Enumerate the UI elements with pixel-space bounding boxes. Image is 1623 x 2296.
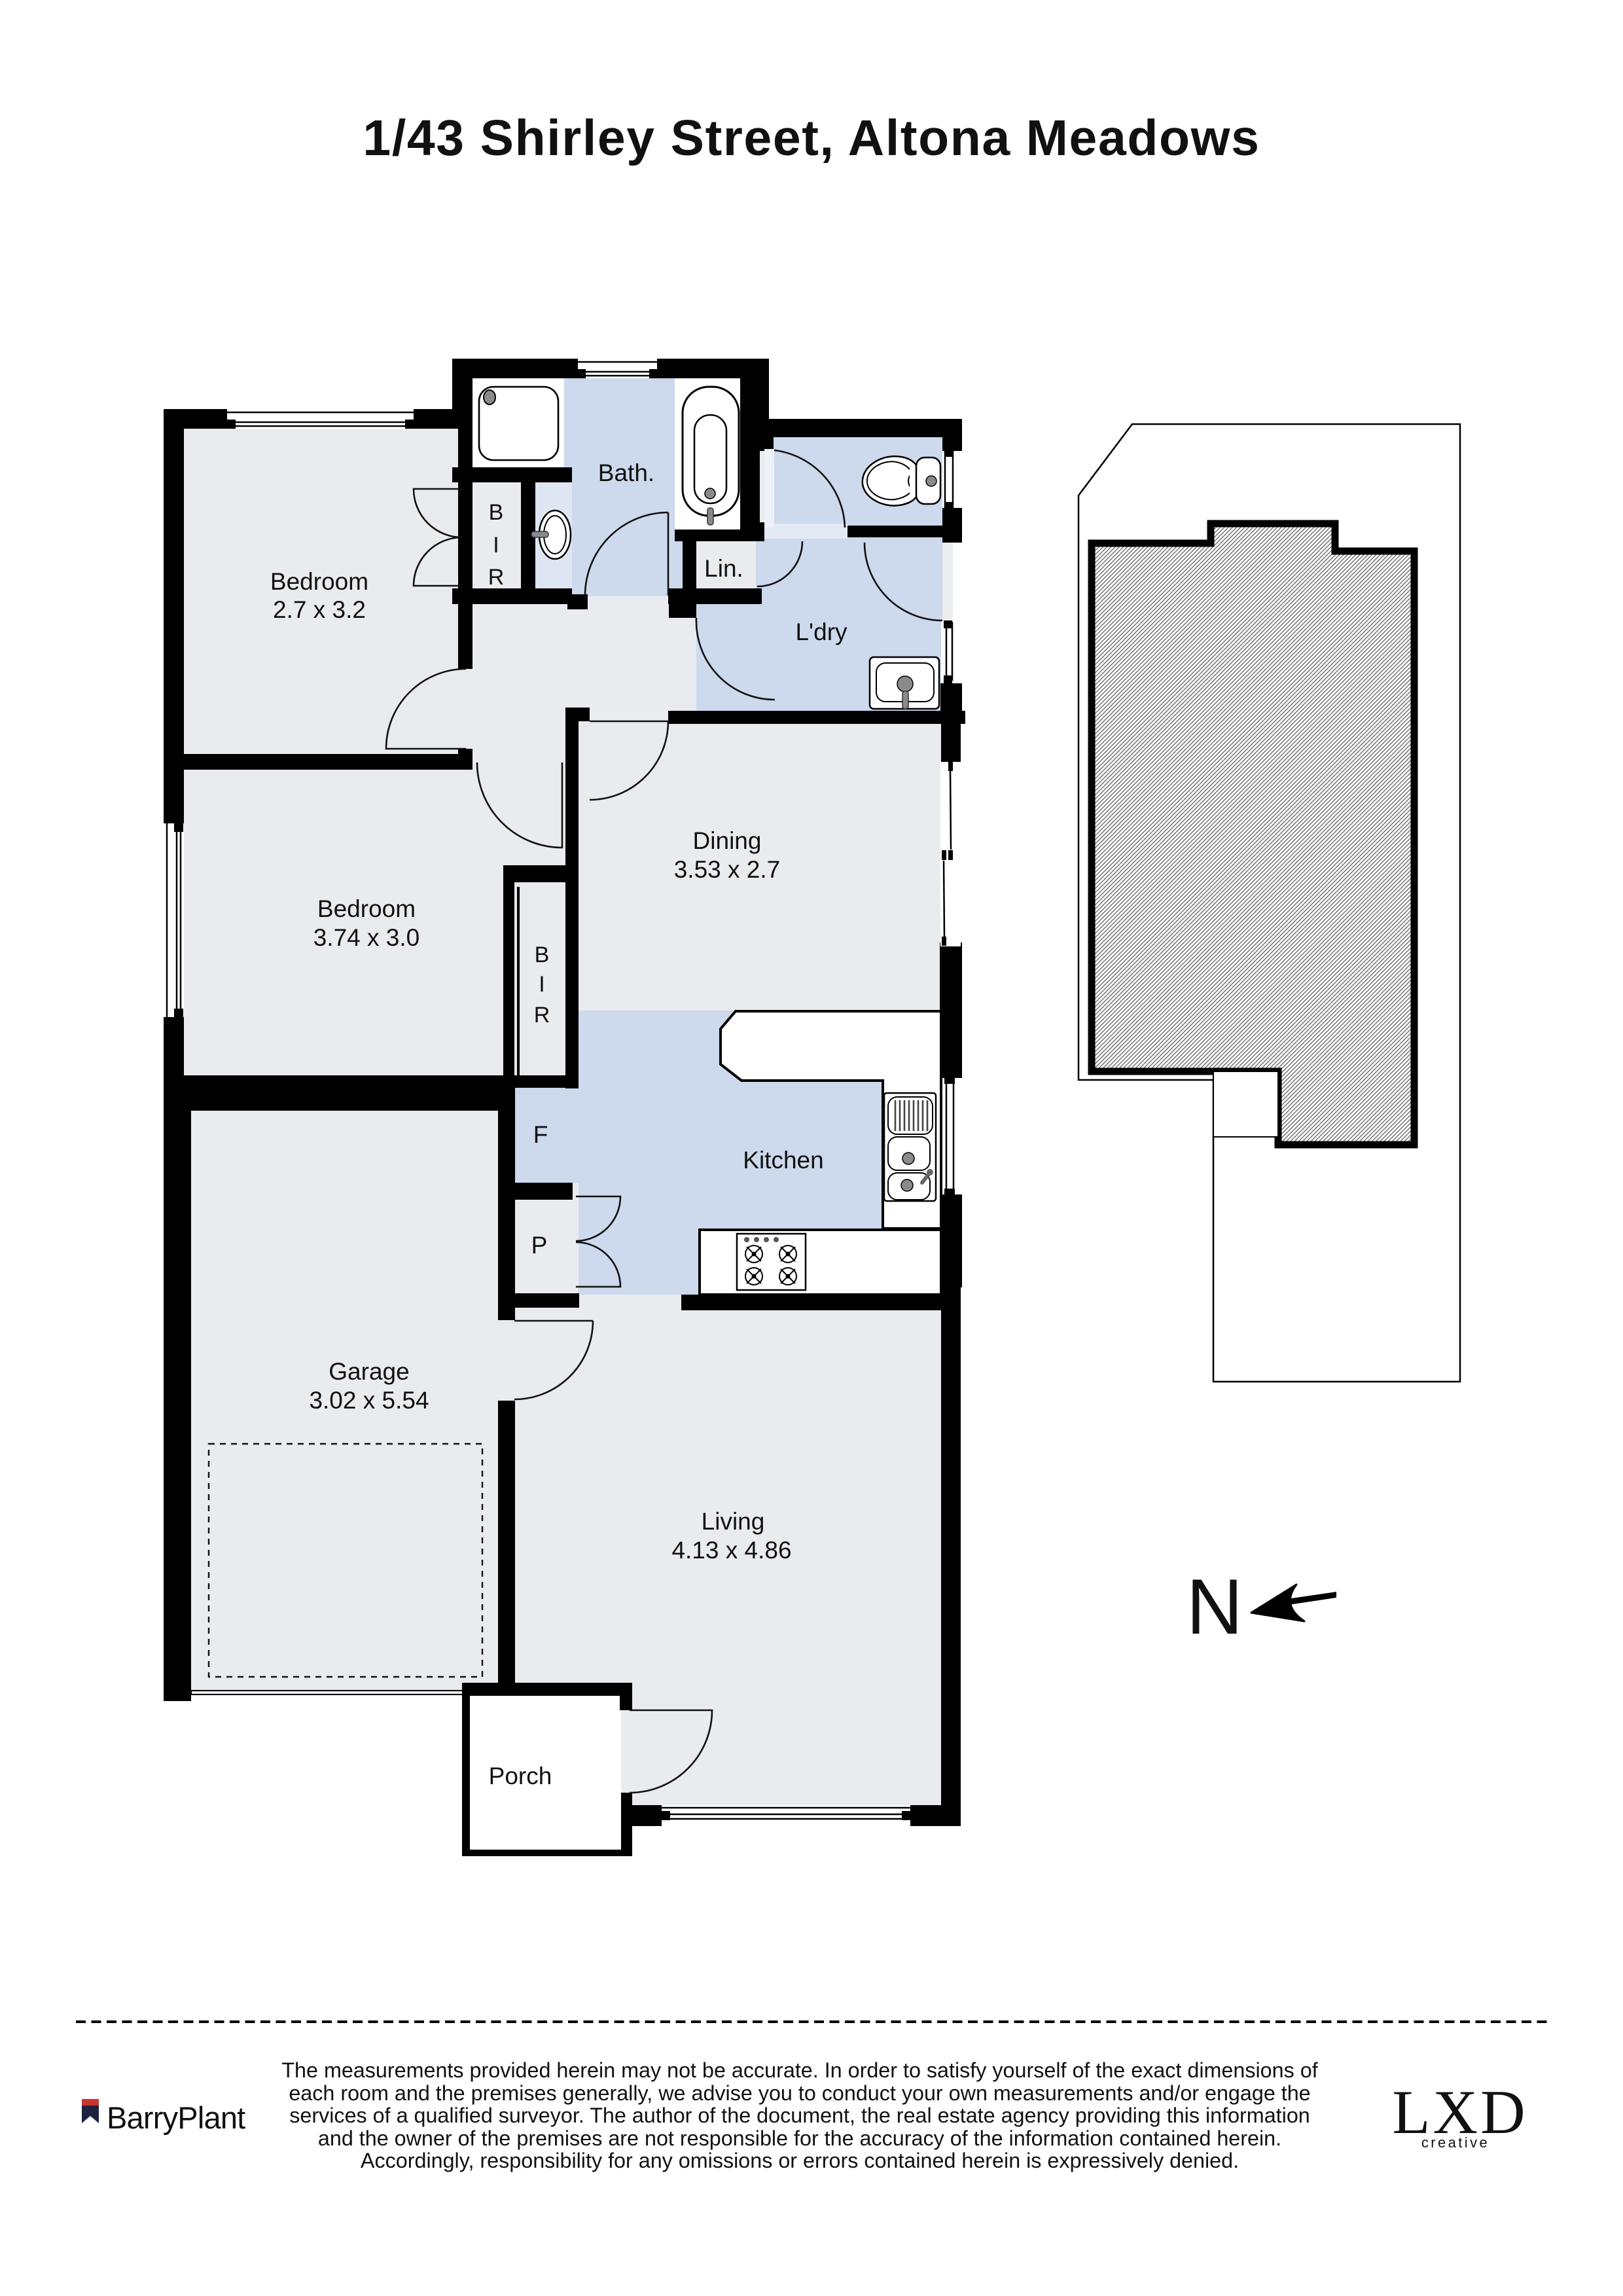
svg-text:Bath.: Bath.	[598, 459, 654, 486]
svg-text:creative: creative	[1421, 2134, 1489, 2151]
svg-text:F: F	[533, 1121, 548, 1148]
svg-text:I: I	[539, 972, 544, 997]
svg-text:Accordingly, responsibility fo: Accordingly, responsibility for any omis…	[361, 2149, 1239, 2172]
svg-text:Dining: Dining	[693, 827, 762, 854]
svg-text:Porch: Porch	[489, 1763, 552, 1789]
svg-text:N: N	[1186, 1563, 1243, 1651]
svg-text:L'dry: L'dry	[795, 619, 847, 645]
svg-text:Bedroom: Bedroom	[317, 895, 416, 922]
svg-text:3.02 x 5.54: 3.02 x 5.54	[309, 1387, 429, 1414]
svg-text:2.7 x 3.2: 2.7 x 3.2	[273, 596, 366, 623]
svg-text:Lin.: Lin.	[704, 555, 743, 582]
svg-text:1/43 Shirley Street, Altona Me: 1/43 Shirley Street, Altona Meadows	[363, 110, 1260, 166]
svg-text:3.53 x 2.7: 3.53 x 2.7	[674, 856, 781, 883]
svg-text:I: I	[493, 533, 499, 558]
svg-text:Garage: Garage	[329, 1358, 409, 1385]
svg-text:R: R	[488, 565, 505, 590]
svg-text:B: B	[535, 942, 550, 967]
svg-text:services of a qualified survey: services of a qualified surveyor. The au…	[289, 2104, 1310, 2127]
svg-text:P: P	[531, 1232, 548, 1259]
svg-text:and the owner of the premises: and the owner of the premises are not re…	[318, 2126, 1281, 2150]
svg-text:Living: Living	[702, 1508, 765, 1535]
svg-text:R: R	[534, 1003, 550, 1028]
svg-text:4.13 x 4.86: 4.13 x 4.86	[671, 1537, 791, 1564]
svg-text:BarryPlant: BarryPlant	[107, 2100, 245, 2135]
svg-text:B: B	[489, 500, 504, 525]
svg-text:each room and the premises gen: each room and the premises generally, we…	[289, 2081, 1310, 2105]
svg-text:Bedroom: Bedroom	[270, 568, 368, 595]
svg-text:The measurements provided here: The measurements provided herein may not…	[281, 2058, 1318, 2082]
svg-text:3.74 x 3.0: 3.74 x 3.0	[313, 924, 420, 951]
svg-text:Kitchen: Kitchen	[743, 1147, 823, 1174]
